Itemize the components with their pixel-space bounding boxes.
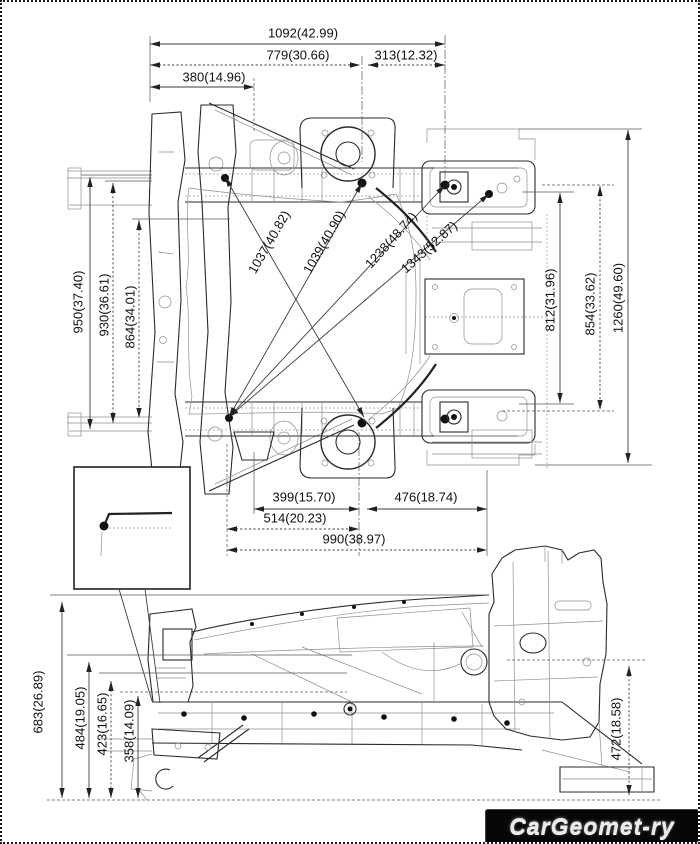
dim-label-812: 812(31.96) — [544, 269, 557, 332]
dim-label-990: 990(38.97) — [323, 533, 386, 546]
dim-label-484: 484(19.05) — [74, 687, 87, 750]
dim-label-472: 472(18.58) — [610, 698, 623, 761]
dim-label-1092: 1092(42.99) — [268, 27, 338, 40]
legend-leader-lines — [119, 589, 160, 703]
dim-label-423: 423(16.65) — [96, 693, 109, 756]
dim-label-683: 683(26.89) — [32, 671, 45, 734]
dim-label-380: 380(14.96) — [183, 71, 246, 84]
dim-label-854: 854(33.62) — [584, 273, 597, 336]
legend-box — [74, 467, 190, 703]
dim-label-476: 476(18.74) — [395, 491, 458, 504]
dim-label-779: 779(30.66) — [267, 49, 330, 62]
dim-label-399: 399(15.70) — [273, 491, 336, 504]
top-view-drawing — [67, 103, 547, 494]
measuring-point-icon — [100, 522, 109, 531]
watermark-logo: CarGeomet-ry — [485, 809, 699, 844]
dim-label-864: 864(34.01) — [124, 286, 137, 349]
body-dimensions-drawing: 1092(42.99) 779(30.66) 313(12.32) 380(14… — [0, 0, 700, 844]
dim-label-1260: 1260(49.60) — [612, 263, 625, 333]
dim-label-930: 930(36.61) — [98, 274, 111, 337]
dim-label-950: 950(37.40) — [72, 271, 85, 334]
dim-label-358: 358(14.09) — [123, 700, 136, 763]
dimension-lines — [47, 35, 662, 800]
watermark-text: CarGeomet-ry — [509, 813, 674, 840]
dim-label-514: 514(20.23) — [264, 512, 327, 525]
dim-label-313: 313(12.32) — [375, 49, 438, 62]
